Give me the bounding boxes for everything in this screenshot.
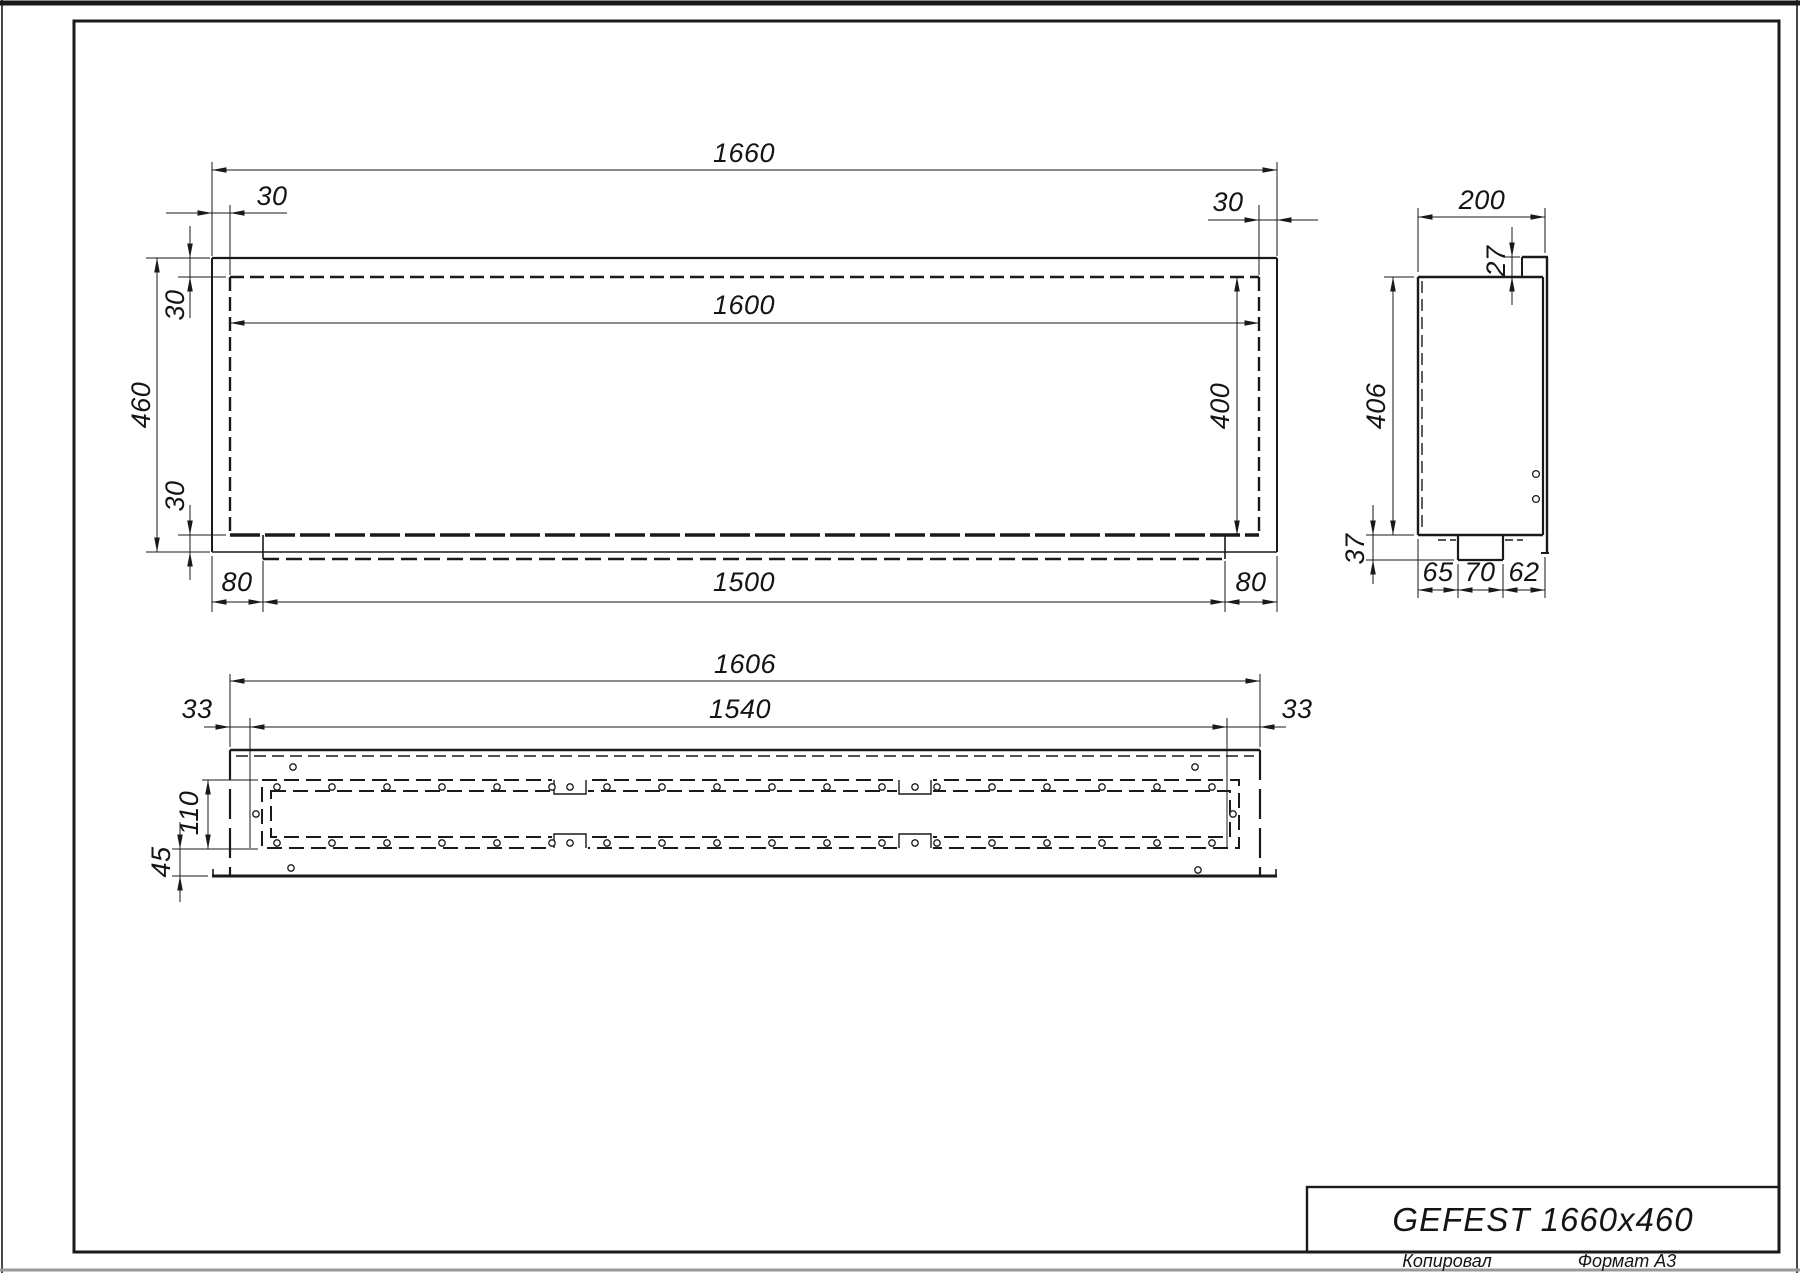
dim-label-1500: 1500 [713, 567, 775, 597]
dim-label-1660: 1660 [713, 138, 775, 168]
screw-hole [1099, 784, 1105, 790]
side-view: 200 27 406 37 [1340, 185, 1549, 598]
front-view-tray [263, 535, 1225, 559]
screw-hole [1195, 867, 1201, 873]
dim-label-80: 80 [1235, 567, 1266, 597]
dim-1600: 1600 [230, 290, 1259, 323]
dim-label-400: 400 [1205, 383, 1235, 430]
dim-label-33: 33 [1281, 694, 1312, 724]
screw-hole [1099, 840, 1105, 846]
format-label: Формат А3 [1578, 1251, 1677, 1271]
screw-hole [1044, 840, 1050, 846]
screw-hole [769, 784, 775, 790]
screw-hole [274, 840, 280, 846]
screw-hole [290, 764, 296, 770]
screw-hole [253, 811, 259, 817]
dim-27: 27 [1481, 227, 1520, 305]
drawing-canvas: 1660 30 30 1600 400 460 [0, 0, 1800, 1273]
drawing-frame [74, 21, 1779, 1252]
screw-hole [567, 840, 573, 846]
screw-hole [494, 840, 500, 846]
screw-hole [879, 840, 885, 846]
dim-label-45: 45 [146, 846, 176, 878]
dim-label-27: 27 [1481, 245, 1511, 278]
title-block: GEFEST 1660x460 [1307, 1187, 1779, 1252]
dim-80-right: 80 [1225, 556, 1277, 612]
dim-label-65: 65 [1422, 557, 1454, 587]
screw-hole [384, 840, 390, 846]
screw-hole [1533, 471, 1540, 478]
screw-hole [934, 784, 940, 790]
dim-label-200: 200 [1458, 185, 1506, 215]
dim-label-30: 30 [160, 289, 190, 320]
screw-hole [989, 840, 995, 846]
dim-label-460: 460 [126, 382, 156, 429]
footer: Копировал Формат А3 [1402, 1251, 1676, 1271]
copied-label: Копировал [1402, 1251, 1492, 1271]
screw-hole [1154, 784, 1160, 790]
dim-400: 400 [1205, 277, 1237, 535]
dim-30-top-left: 30 [166, 181, 288, 275]
dim-1500: 1500 [263, 561, 1225, 612]
gasket-band-inner [271, 791, 1230, 837]
dim-label-30: 30 [256, 181, 287, 211]
screw-hole [824, 784, 830, 790]
screw-hole [912, 784, 918, 790]
screw-hole [934, 840, 940, 846]
burner-band [262, 780, 1239, 848]
screw-hole [329, 840, 335, 846]
dim-30-left-upper: 30 [160, 226, 226, 321]
side-view-holes [1533, 471, 1540, 503]
dim-label-30: 30 [160, 480, 190, 511]
dim-label-1540: 1540 [709, 694, 771, 724]
dim-label-1600: 1600 [713, 290, 775, 320]
dim-30-left-lower: 30 [160, 480, 226, 580]
screw-hole [1209, 784, 1215, 790]
dim-65-70-62: 65 70 62 [1418, 539, 1545, 598]
side-view-outline [1418, 277, 1543, 535]
drawing-title: GEFEST 1660x460 [1392, 1201, 1693, 1238]
screw-hole [604, 784, 610, 790]
screw-hole [274, 784, 280, 790]
screw-hole [824, 840, 830, 846]
dim-label-110: 110 [174, 791, 204, 836]
dim-label-80: 80 [221, 567, 252, 597]
dim-label-62: 62 [1508, 557, 1539, 587]
screw-hole [879, 784, 885, 790]
screw-hole [1192, 764, 1198, 770]
screw-hole [989, 784, 995, 790]
dim-1660: 1660 [212, 138, 1277, 256]
dim-label-406: 406 [1361, 382, 1391, 429]
screw-hole [1154, 840, 1160, 846]
screw-hole [1044, 784, 1050, 790]
front-view: 1660 30 30 1600 400 460 [126, 138, 1318, 612]
dim-label-30: 30 [1212, 187, 1243, 217]
screw-hole [659, 784, 665, 790]
screw-hole [567, 784, 573, 790]
bottom-view-outline [230, 750, 1260, 876]
bottom-view: 1606 1540 33 33 110 45 [146, 649, 1313, 902]
dim-30-top-right: 30 [1208, 187, 1318, 275]
screw-hole [549, 840, 555, 846]
screw-hole [1533, 496, 1540, 503]
side-view-frame-plate [1522, 257, 1549, 553]
dim-1540: 1540 [250, 694, 1227, 848]
dim-label-70: 70 [1464, 557, 1495, 587]
screw-hole [1230, 811, 1236, 817]
drawing-sheet: 1660 30 30 1600 400 460 [0, 0, 1800, 1273]
dim-label-1606: 1606 [714, 649, 777, 679]
screw-hole [659, 840, 665, 846]
screw-hole [329, 784, 335, 790]
screw-hole [384, 784, 390, 790]
screw-hole [288, 865, 294, 871]
screw-hole [1209, 840, 1215, 846]
dim-80-left: 80 [212, 556, 263, 612]
dim-label-37: 37 [1340, 533, 1370, 565]
dim-406: 406 [1361, 277, 1414, 535]
screw-hole [439, 784, 445, 790]
screw-hole [604, 840, 610, 846]
dim-33-left: 33 [181, 694, 250, 727]
screw-hole [549, 784, 555, 790]
dim-label-33: 33 [181, 694, 212, 724]
screw-hole [912, 840, 918, 846]
dim-33-right: 33 [1227, 694, 1313, 727]
screw-hole [714, 784, 720, 790]
bottom-view-base-plate [212, 869, 1277, 876]
screw-hole [439, 840, 445, 846]
screw-hole [494, 784, 500, 790]
dim-110: 110 [172, 780, 258, 849]
screw-hole [769, 840, 775, 846]
screw-hole [714, 840, 720, 846]
